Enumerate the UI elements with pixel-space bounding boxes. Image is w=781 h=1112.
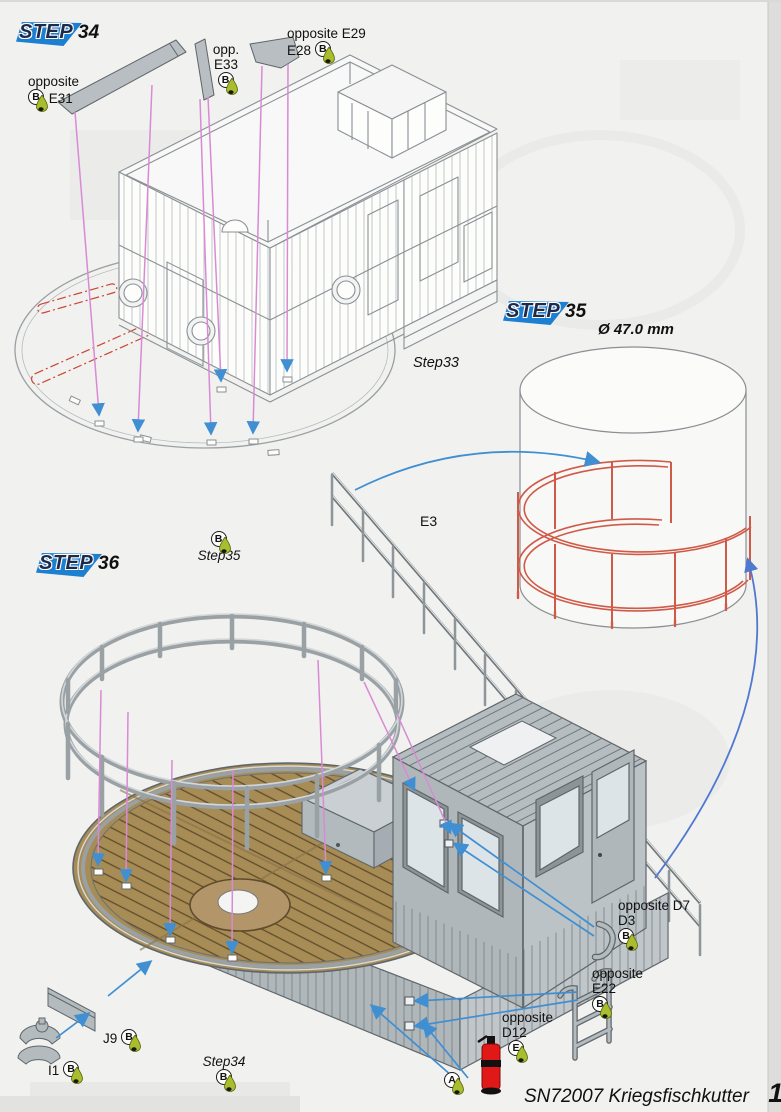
cylinder-47mm xyxy=(520,347,746,628)
label-d12: opposite D12 E xyxy=(502,1010,553,1057)
deckhouse-step33 xyxy=(119,55,497,402)
step36-diagram xyxy=(18,614,668,1095)
step34-diagram xyxy=(15,37,497,455)
glue-icon: B xyxy=(592,996,609,1013)
label-e3: E3 xyxy=(420,514,437,529)
label-e31: opposite B E31 xyxy=(28,74,79,106)
step-34-banner: STEP 34 xyxy=(16,20,112,50)
label-step35-ref: B Step35 xyxy=(193,531,245,563)
glue-icon: B xyxy=(218,72,235,89)
cabin-door xyxy=(592,750,634,903)
label-d7-d3: opposite D7 D3 B xyxy=(618,898,690,945)
step-number: 35 xyxy=(565,301,586,323)
glue-icon: B xyxy=(63,1061,80,1078)
step-word: STEP xyxy=(39,552,93,575)
glue-icon: B xyxy=(211,531,228,548)
glue-icon: B xyxy=(216,1069,233,1086)
page-number: 11 xyxy=(768,1078,781,1108)
label-i1: I1 B xyxy=(48,1061,80,1078)
glue-icon: B xyxy=(315,41,332,58)
step-number: 36 xyxy=(98,553,119,575)
glue-icon: E xyxy=(508,1040,525,1057)
label-e28-e29: opposite E29 E28 B xyxy=(287,26,366,58)
glue-icon: B xyxy=(121,1029,138,1046)
label-e33: opp. E33 B xyxy=(206,42,246,89)
label-diameter: Ø 47.0 mm xyxy=(598,322,674,337)
glue-icon: B xyxy=(618,928,635,945)
step-number: 34 xyxy=(78,22,99,44)
label-j9: J9 B xyxy=(103,1029,138,1046)
page-footer: SN72007 Kriegsfischkutter 11 xyxy=(524,1078,781,1109)
step-35-banner: STEP 35 xyxy=(503,299,599,329)
glue-icon: A xyxy=(444,1072,461,1089)
instruction-page: STEP 34 STEP 35 STEP 36 opposite B E31 o… xyxy=(0,0,781,1112)
kit-title: SN72007 Kriegsfischkutter xyxy=(524,1086,749,1107)
label-e22: opposite E22 B xyxy=(592,966,643,1013)
glue-icon: B xyxy=(28,89,45,106)
label-glue-a: A xyxy=(444,1072,461,1089)
label-step33: Step33 xyxy=(413,356,459,371)
step-36-banner: STEP 36 xyxy=(36,551,132,581)
step-word: STEP xyxy=(19,21,73,44)
label-step34-ref: Step34 B xyxy=(196,1054,252,1086)
part-i1 xyxy=(18,1018,60,1064)
step-word: STEP xyxy=(506,300,560,323)
part-j9 xyxy=(48,988,95,1031)
